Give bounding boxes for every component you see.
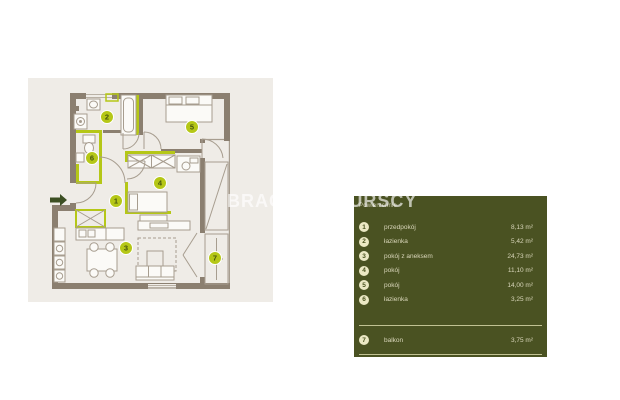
area-row: 6 łazienka 3,25 m²	[354, 293, 547, 308]
area-row: 7 balkon 3,75 m²	[354, 333, 547, 348]
row-number-badge: 4	[359, 266, 369, 276]
room-label: łazienka	[384, 238, 511, 245]
sofa	[136, 266, 174, 280]
room-marker-6: 6	[86, 152, 99, 165]
area-row: 3 pokój z aneksem 24,73 m²	[354, 249, 547, 264]
toilet-tank	[83, 135, 95, 143]
panel-title: Powierzchnie	[359, 203, 397, 209]
svg-text:5: 5	[190, 123, 194, 132]
room-label: przedpokój	[384, 224, 511, 231]
room-marker-1: 1	[110, 195, 123, 208]
room-label: pokój	[384, 267, 508, 274]
coffee-table	[147, 251, 163, 266]
room-marker-7: 7	[209, 252, 222, 265]
row-number-badge: 2	[359, 237, 369, 247]
kitchen-unit	[54, 228, 65, 241]
room-marker-2: 2	[101, 111, 114, 124]
row-number-badge: 6	[359, 295, 369, 305]
area-row: 1 przedpokój 8,13 m²	[354, 220, 547, 235]
room-area: 3,75 m²	[511, 337, 533, 344]
row-number-badge: 7	[359, 335, 369, 345]
area-row: 5 pokój 14,00 m²	[354, 278, 547, 293]
room-label: pokój z aneksem	[384, 253, 507, 260]
svg-text:1: 1	[114, 197, 118, 206]
areas-panel: Powierzchnie 1 przedpokój 8,13 m² 2 łazi…	[354, 196, 547, 357]
section-divider	[359, 325, 542, 326]
room-marker-5: 5	[186, 121, 199, 134]
area-row: 4 pokój 11,10 m²	[354, 264, 547, 279]
floor-plan: 1 2 3 4 5 6 7	[28, 78, 273, 302]
chair	[106, 269, 114, 277]
chair	[90, 243, 98, 251]
row-number-badge: 5	[359, 280, 369, 290]
room-marker-3: 3	[120, 242, 133, 255]
room-area: 3,25 m²	[511, 296, 533, 303]
dining-table	[87, 249, 117, 271]
room-area: 5,42 m²	[511, 238, 533, 245]
entrance-arrow-icon	[50, 194, 67, 206]
room-label: łazienka	[384, 296, 511, 303]
room-marker-4: 4	[154, 177, 167, 190]
area-row: 2 łazienka 5,42 m²	[354, 235, 547, 250]
tv-cabinet	[138, 221, 190, 230]
room-area: 14,00 m²	[507, 282, 533, 289]
balcony-door	[183, 233, 197, 255]
svg-text:6: 6	[90, 154, 94, 163]
page: 1 2 3 4 5 6 7 BRACIA SADURSCY Powierzchn…	[0, 0, 620, 400]
svg-text:2: 2	[105, 113, 109, 122]
svg-text:7: 7	[213, 254, 217, 263]
room-area: 11,10 m²	[508, 267, 533, 274]
chair	[90, 269, 98, 277]
room-area: 24,73 m²	[507, 253, 533, 260]
area-rows: 1 przedpokój 8,13 m² 2 łazienka 5,42 m² …	[354, 220, 547, 355]
svg-text:3: 3	[124, 244, 128, 253]
room-label: balkon	[384, 337, 511, 344]
room-area: 8,13 m²	[511, 224, 533, 231]
room-label: pokój	[384, 282, 507, 289]
bottom-divider	[359, 354, 542, 355]
row-number-badge: 3	[359, 251, 369, 261]
small-sink	[76, 153, 84, 162]
row-number-badge: 1	[359, 222, 369, 232]
chair	[106, 243, 114, 251]
